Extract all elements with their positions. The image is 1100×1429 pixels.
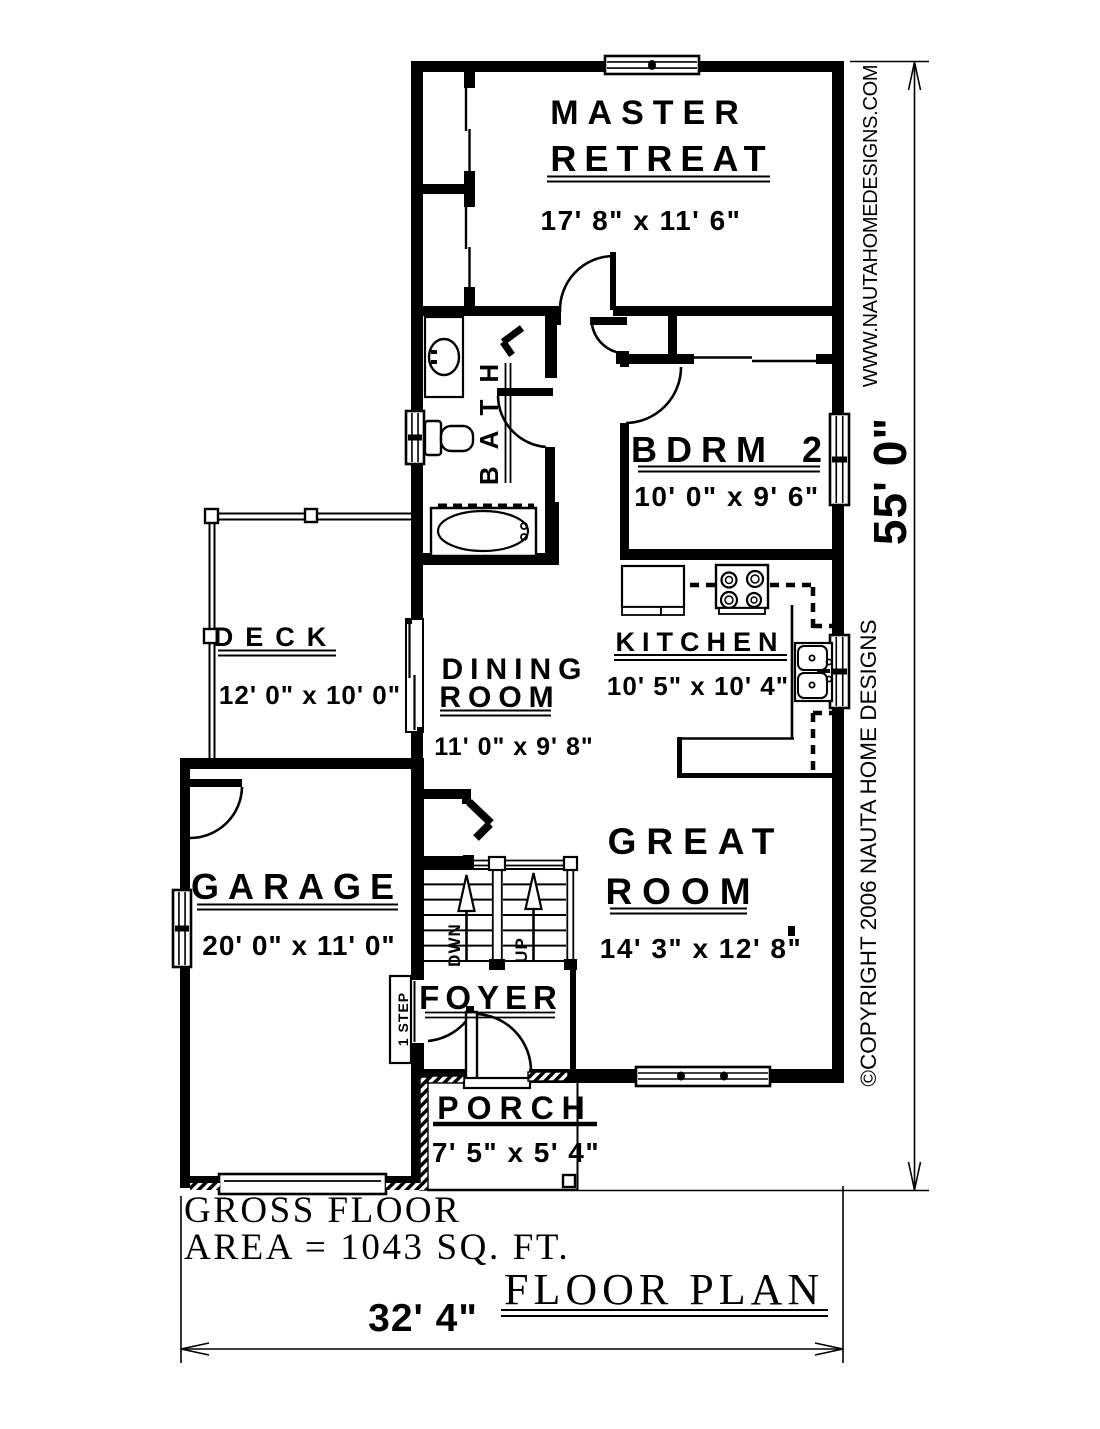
svg-text:32' 4": 32' 4" [368,1297,478,1340]
svg-text:20' 0" x 11' 0": 20' 0" x 11' 0" [202,930,395,961]
svg-text:55' 0": 55' 0" [864,417,916,545]
svg-text:10' 0" x 9' 6": 10' 0" x 9' 6" [634,481,819,512]
svg-text:ROOM: ROOM [439,681,560,714]
svg-text:2: 2 [802,429,822,470]
svg-text:FLOOR PLAN: FLOOR PLAN [504,1265,824,1314]
svg-text:AREA = 1043 SQ. FT.: AREA = 1043 SQ. FT. [184,1227,570,1268]
svg-text:UP: UP [512,937,531,963]
svg-text:GREAT: GREAT [608,821,785,862]
svg-text:BATH: BATH [474,347,504,485]
svg-text:12' 0" x 10' 0": 12' 0" x 10' 0" [219,680,401,710]
svg-text:FOYER: FOYER [419,979,563,1016]
svg-text:7' 5" x 5' 4": 7' 5" x 5' 4" [432,1137,600,1168]
svg-text:KITCHEN: KITCHEN [616,627,785,657]
svg-text:RETREAT: RETREAT [550,138,773,179]
svg-text:17' 8" x 11' 6": 17' 8" x 11' 6" [541,205,742,236]
svg-text:11' 0" x 9' 8": 11' 0" x 9' 8" [434,733,593,761]
svg-text:PORCH: PORCH [437,1090,593,1126]
svg-text:14' 3" x 12' 8": 14' 3" x 12' 8" [600,933,803,964]
svg-text:GARAGE: GARAGE [191,866,403,907]
svg-text:GROSS FLOOR: GROSS FLOOR [184,1190,461,1231]
svg-text:1 STEP: 1 STEP [395,992,411,1046]
svg-text:©COPYRIGHT 2006 NAUTA HOME DES: ©COPYRIGHT 2006 NAUTA HOME DESIGNS [856,619,881,1086]
svg-text:MASTER: MASTER [550,94,748,132]
svg-text:DECK: DECK [214,622,339,652]
svg-text:10' 5" x 10' 4": 10' 5" x 10' 4" [607,671,789,701]
svg-text:DWN: DWN [445,923,464,967]
svg-text:ROOM: ROOM [605,871,760,912]
svg-text:BDRM: BDRM [631,429,775,470]
svg-text:WWW.NAUTAHOMEDESIGNS.COM: WWW.NAUTAHOMEDESIGNS.COM [860,65,882,387]
